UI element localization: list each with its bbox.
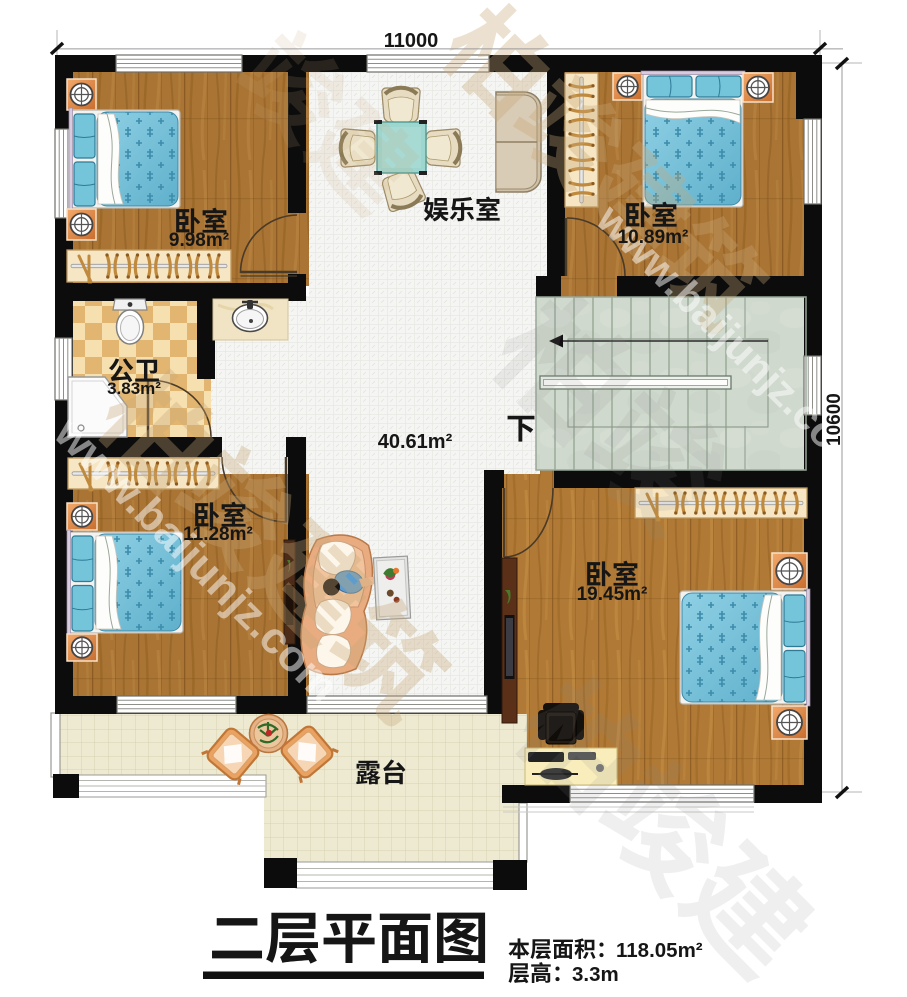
svg-text:118.05m²: 118.05m² <box>616 939 703 962</box>
svg-text:10600: 10600 <box>824 393 845 446</box>
svg-text:3.3m: 3.3m <box>572 963 619 986</box>
svg-text:11000: 11000 <box>384 30 439 52</box>
svg-text:11.28m²: 11.28m² <box>183 524 253 545</box>
svg-text:3.83m²: 3.83m² <box>107 379 161 398</box>
svg-text:40.61m²: 40.61m² <box>378 431 453 453</box>
svg-text:10.89m²: 10.89m² <box>618 227 689 248</box>
svg-text:9.98m²: 9.98m² <box>169 230 229 251</box>
svg-text:19.45m²: 19.45m² <box>577 584 648 605</box>
